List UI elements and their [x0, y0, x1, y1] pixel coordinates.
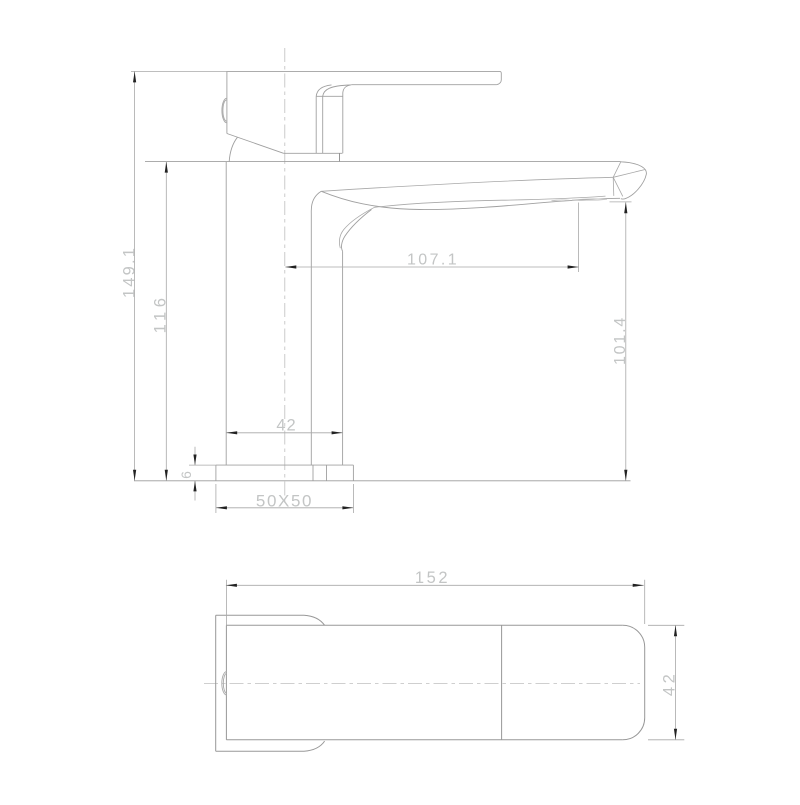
svg-text:101.4: 101.4 — [612, 316, 629, 365]
svg-text:149.1: 149.1 — [120, 246, 138, 298]
svg-text:42: 42 — [276, 416, 296, 434]
svg-text:152: 152 — [415, 569, 450, 587]
svg-text:42: 42 — [661, 671, 679, 696]
svg-text:107.1: 107.1 — [407, 252, 459, 269]
svg-text:116: 116 — [152, 294, 170, 334]
svg-text:6: 6 — [178, 471, 194, 479]
svg-text:50X50: 50X50 — [256, 491, 313, 510]
